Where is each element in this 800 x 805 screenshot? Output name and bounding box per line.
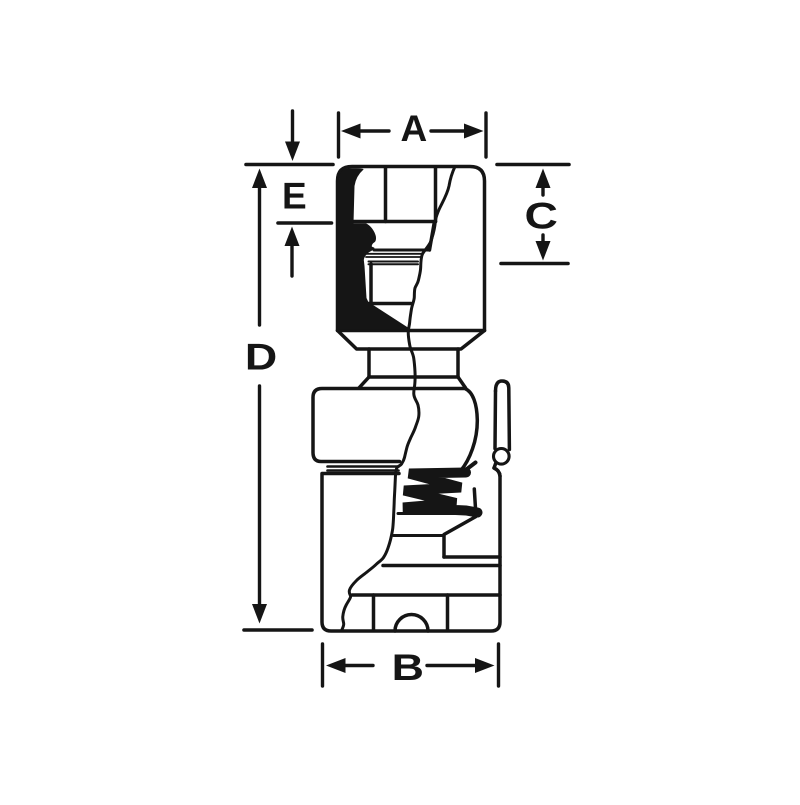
- svg-text:B: B: [392, 647, 424, 688]
- svg-text:E: E: [282, 176, 307, 217]
- svg-text:A: A: [401, 108, 428, 149]
- svg-text:C: C: [525, 195, 558, 237]
- svg-text:D: D: [245, 336, 277, 377]
